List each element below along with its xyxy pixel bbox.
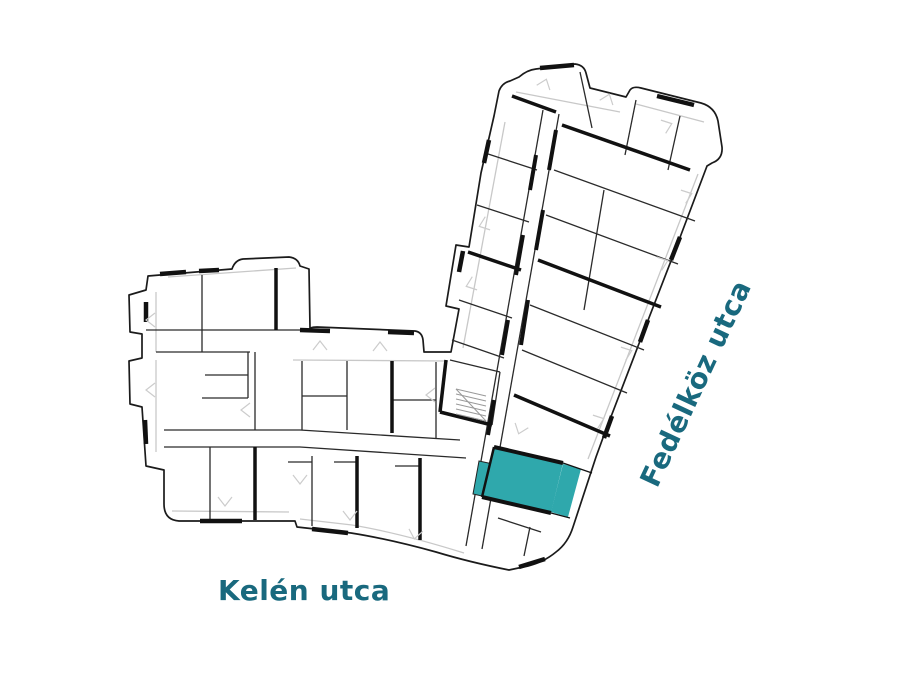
- floor-plan-svg: Kelén utca Fedélköz utca: [0, 0, 900, 700]
- street-label-kelen: Kelén utca: [218, 574, 390, 607]
- floor-plan-page: Kelén utca Fedélköz utca: [0, 0, 900, 700]
- building-outline: [129, 64, 722, 570]
